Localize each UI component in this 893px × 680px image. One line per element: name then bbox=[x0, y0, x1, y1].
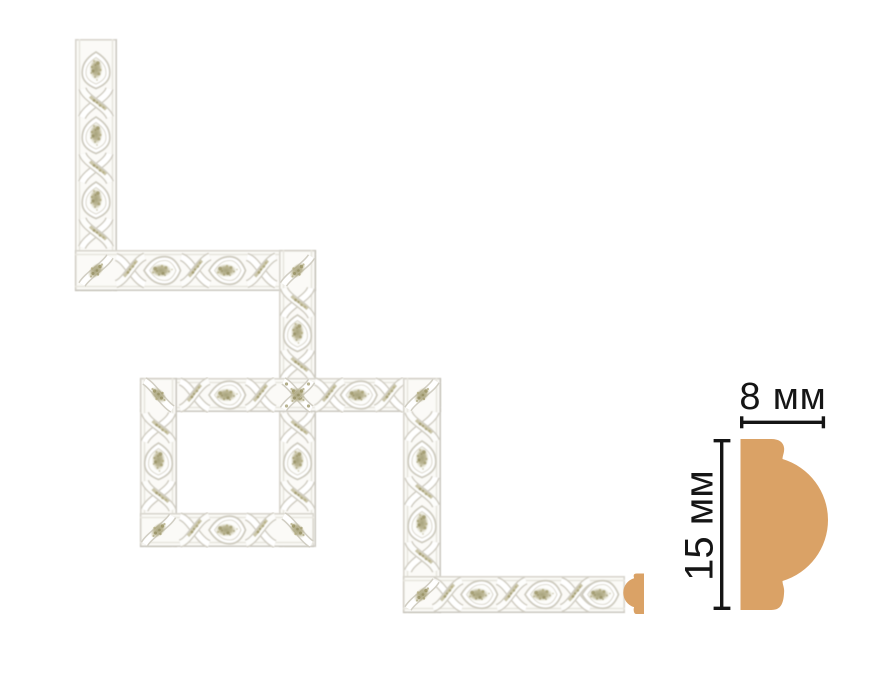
svg-text:15 мм: 15 мм bbox=[678, 470, 722, 581]
svg-text:8 мм: 8 мм bbox=[739, 376, 826, 418]
